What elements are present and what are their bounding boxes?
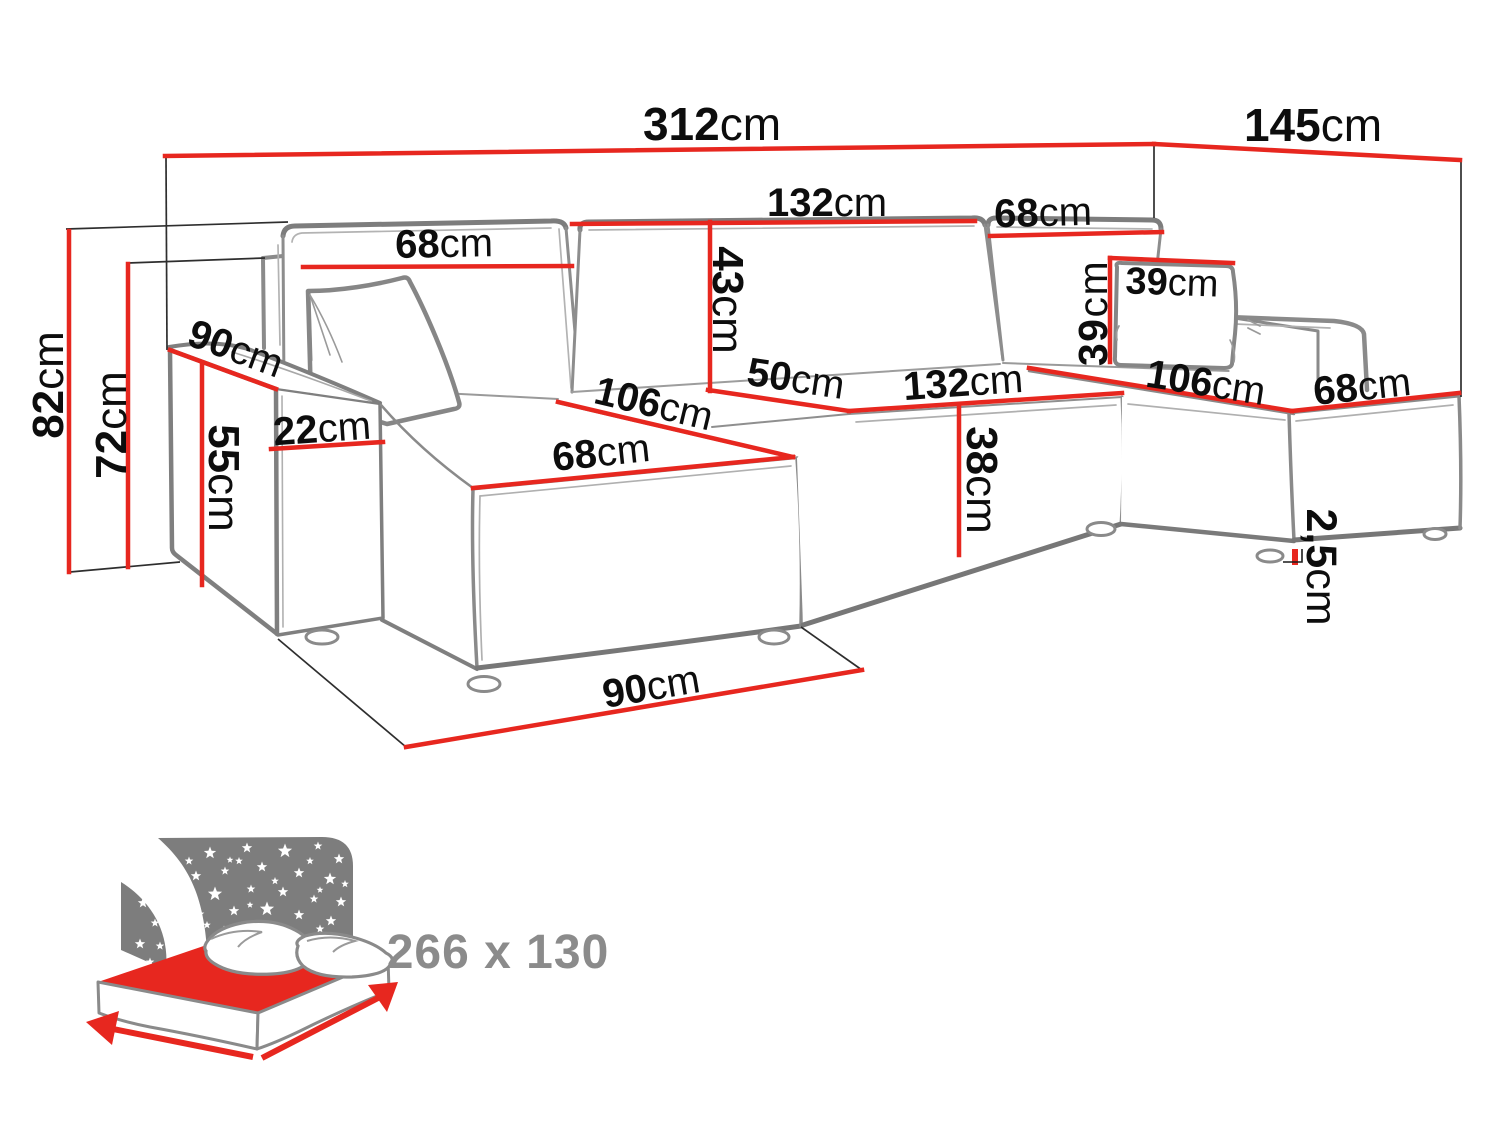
svg-text:22cm: 22cm <box>272 404 373 455</box>
svg-text:132cm: 132cm <box>767 181 887 225</box>
svg-text:39cm: 39cm <box>1070 260 1116 366</box>
svg-text:2,5cm: 2,5cm <box>1297 508 1345 625</box>
svg-text:68cm: 68cm <box>994 190 1093 237</box>
svg-text:38cm: 38cm <box>957 426 1006 534</box>
svg-text:43cm: 43cm <box>703 246 752 354</box>
svg-text:39cm: 39cm <box>1125 260 1219 305</box>
svg-text:72cm: 72cm <box>87 371 136 479</box>
svg-text:145cm: 145cm <box>1244 99 1382 151</box>
svg-text:132cm: 132cm <box>902 357 1025 409</box>
svg-text:312cm: 312cm <box>643 98 781 150</box>
svg-text:266 x 130: 266 x 130 <box>387 926 610 979</box>
svg-text:82cm: 82cm <box>24 331 73 439</box>
svg-text:55cm: 55cm <box>199 424 248 532</box>
svg-text:68cm: 68cm <box>395 221 494 267</box>
